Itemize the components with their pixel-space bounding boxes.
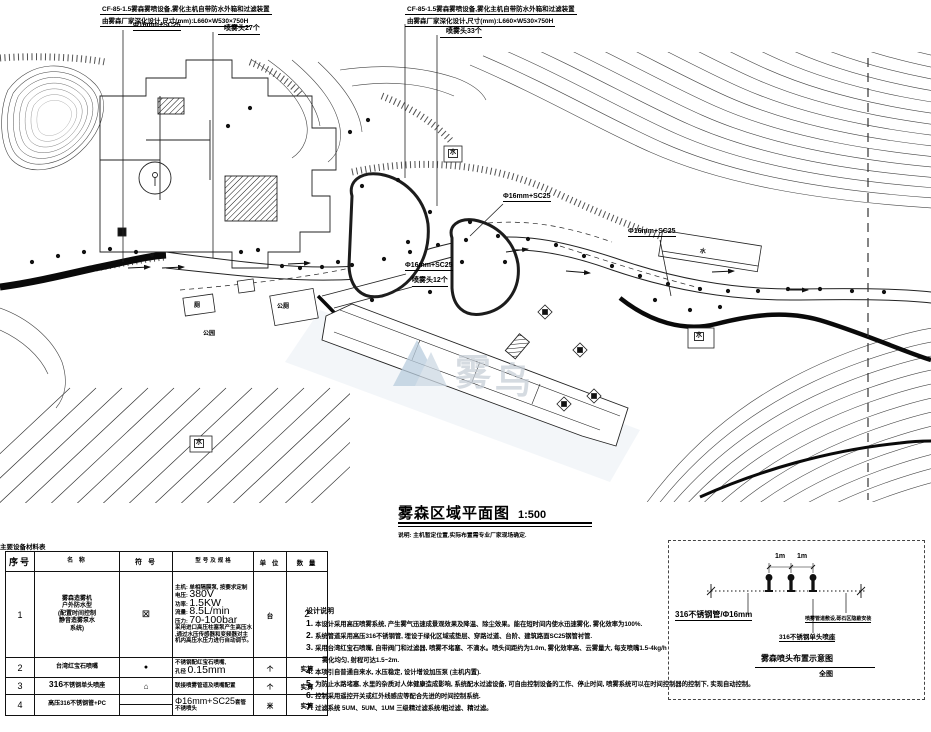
nozzle-layout-detail: 1m 1m 316不锈钢管/Φ16mm 喷雾管道敷设,砾石区隐蔽安装 316不锈… [668,540,925,700]
detail-title: 雾森喷头布置示意图 [761,653,833,664]
drawing-scale: 1:500 [518,509,546,521]
detail-install-label: 喷雾管道敷设,砾石区隐蔽安装 [805,615,871,623]
terraces [349,174,518,315]
spray-head-count-label: 喷雾头33个 [440,26,482,38]
pipe-spec-label: Φ16mm+SC25 [628,228,676,237]
row-no: 2 [6,658,35,678]
equipment-name: 雾森造雾机 户外防水型 (配置时间控制 静音造雾泵水 系统) [35,572,120,658]
spray-head-count-label: 喷雾头27个 [218,23,260,35]
col-header: 名 称 [35,552,120,572]
dimension-label: 1m [772,553,788,560]
detail-title-underline [755,667,875,668]
drawing-title: 雾森区域平面图1:500 [398,502,546,523]
contours-top-left [2,66,104,170]
park-buildings [183,279,318,326]
table-row: 4 高压316不锈钢管+PC Φ16mm+SC25套管 不锈喷头 米 实算 [6,695,328,716]
spray-head-count-label: 喷雾头12个 [412,275,448,287]
site-plan-canvas [0,0,931,540]
col-header: 单 位 [254,552,287,572]
annotation-line: CF-85-1.5雾森雾喷设备,雾化主机自带防水外箱和过滤装置 [100,3,272,15]
water-label: 水 [194,439,204,448]
equipment-name: 316不锈钢单头喷座 [35,678,120,695]
equipment-name: 台湾红宝石喷嘴 [35,658,120,678]
unit-cell: 个 [254,678,287,695]
drawing-title-text: 雾森区域平面图 [398,505,510,522]
nozzle-symbol: ● [120,658,173,678]
row-no: 1 [6,572,35,658]
building-complex-left [100,60,336,268]
annotation-top-right: CF-85-1.5雾森雾喷设备,雾化主机自带防水外箱和过滤装置 由雾森厂家深化设… [405,3,577,27]
detail-seat-label: 316不锈钢单头喷座 [779,631,835,642]
annotation-line: CF-85-1.5雾森雾喷设备,雾化主机自带防水外箱和过滤装置 [405,3,577,15]
fog-machine-symbol: ⊠ [120,572,173,658]
pipe-spec-label: Φ16mm+SC25 [133,22,181,31]
water-label: 水 [694,332,704,341]
roads [166,222,931,303]
public-toilet-label: 公厕 [277,301,289,310]
table-row: 1 雾森造雾机 户外防水型 (配置时间控制 静音造雾泵水 系统) ⊠ 主机: 单… [6,572,328,658]
title-underline [398,526,592,527]
slope-hatch-bottom-left [0,388,434,510]
table-row: 3 316不锈钢单头喷座 ⌂ 联接喷雾管道及喷嘴配置 个 实算 [6,678,328,695]
pipe-spec-label: Φ16mm+SC25 [503,193,551,202]
dimension-label: 1m [794,553,810,560]
title-note: 说明: 主机暂定位置,实际布置需专业厂家现场确定. [398,530,527,539]
table-row: 2 台湾红宝石喷嘴 ● 不锈钢配红宝石喷嘴, 孔径 0.15mm 个 实算 [6,658,328,678]
detail-pipe-label: 316不锈钢管/Φ16mm [675,609,752,621]
toilet-label: 厕 [194,300,200,309]
drawing-sheet: CF-85-1.5雾森雾喷设备,雾化主机自带防水外箱和过滤装置 由雾森厂家深化设… [0,0,931,732]
equipment-name: 高压316不锈钢管+PC [35,695,120,716]
water-label: 水 [699,246,706,256]
detail-subtitle: 全图 [819,669,833,679]
col-header: 序号 [6,552,35,572]
park-label: 公园 [203,328,215,337]
col-header: 型号及规格 [173,552,254,572]
unit-cell: 台 [254,572,287,658]
water-label: 水 [448,149,458,158]
nozzle-seat-symbol: ⌂ [120,678,173,695]
pipe-spec-label: Φ16mm+SC25 [405,262,453,271]
equipment-table: 序号 名 称 符 号 型号及规格 单 位 数 量 1 雾森造雾机 户外防水型 (… [5,551,328,716]
note-item: 7.过滤系统 5UM、5UM、1UM 三级精过滤系统/粗过滤、精过滤。 [306,702,931,714]
row-no: 3 [6,678,35,695]
equipment-spec: 主机: 单相隔膜泵, 按要求定制 电压: 380V 功率: 1.5KW 流量: … [173,572,254,658]
table-header-row: 序号 名 称 符 号 型号及规格 单 位 数 量 [6,552,328,572]
table-caption: 主要设备材料表 [0,541,46,551]
equipment-spec: 不锈钢配红宝石喷嘴, 孔径 0.15mm [173,658,254,678]
row-no: 4 [6,695,35,716]
title-underline [398,522,592,524]
equipment-spec: 联接喷雾管道及喷嘴配置 [173,678,254,695]
unit-cell: 个 [254,658,287,678]
pipe-line-symbol [120,695,173,716]
contours-bottom-right [645,328,931,540]
col-header: 数 量 [287,552,328,572]
unit-cell: 米 [254,695,287,716]
contours-top-right [470,0,931,208]
col-header: 符 号 [120,552,173,572]
equipment-spec: Φ16mm+SC25套管 不锈喷头 [173,695,254,716]
